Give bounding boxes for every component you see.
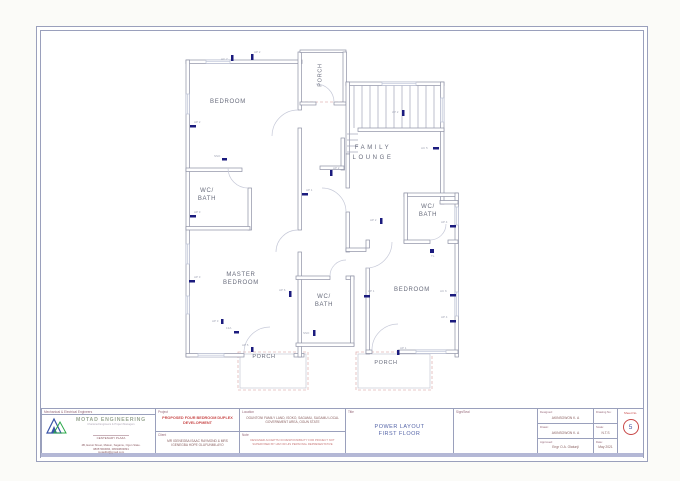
room-label-wc-bath-center: WC/BATH bbox=[315, 294, 333, 309]
socket-symbol bbox=[380, 218, 383, 224]
note-value: DESIGNER ACCEPTS NO RESPONSIBILITY FOR P… bbox=[240, 437, 345, 446]
room-label-bedroom-1: BEDROOM bbox=[210, 99, 246, 107]
company-plaza: CENTENARY PLAZA bbox=[93, 435, 130, 440]
socket-label: AP 2 bbox=[370, 218, 377, 222]
socket-label: AP 1 bbox=[368, 289, 375, 293]
socket-label: AP 1 bbox=[306, 188, 313, 192]
socket-symbol bbox=[364, 295, 370, 298]
location-value: OGUNTONI FAMILY LAND, ISOKO, SAGAMU, SAG… bbox=[240, 414, 345, 424]
designed-label: Designed: bbox=[538, 409, 593, 414]
people-cell: Designed: AKINSOWON K. A Drawn: AKINSOWO… bbox=[537, 409, 593, 453]
engineers-strip-label: Mechanical & Electrical Engineers bbox=[42, 409, 155, 414]
socket-symbol bbox=[190, 215, 196, 218]
socket-symbol bbox=[190, 125, 196, 128]
socket-label: AP 1 bbox=[400, 346, 407, 350]
socket-symbol bbox=[189, 280, 195, 283]
room-label-porch-bottom-left: PORCH bbox=[252, 354, 275, 362]
walls bbox=[186, 50, 459, 357]
scale-label: Scale: bbox=[594, 424, 617, 429]
socket-symbols: AC 7AP 2AP 2AP 3AP 3SSOAP 3AP 1AP 2AC 5A… bbox=[189, 50, 456, 355]
socket-label: AP 2 bbox=[194, 120, 201, 124]
socket-label: AP 3 bbox=[194, 275, 201, 279]
project-client-cell: Project PROPOSED FOUR BEDROOM DUPLEX DEV… bbox=[155, 409, 239, 453]
room-label-bedroom-2: BEDROOM bbox=[394, 287, 430, 295]
sheet-no-label: Sheet No. bbox=[618, 411, 643, 415]
socket-label: AP 6 bbox=[279, 288, 286, 292]
room-label-wc-bath-right: WC/BATH bbox=[419, 204, 437, 219]
date-label: Date: bbox=[594, 439, 617, 444]
socket-symbol bbox=[450, 225, 456, 228]
drawn-value: AKINSOWON K. A bbox=[538, 431, 593, 435]
socket-label: AP 5 bbox=[242, 343, 249, 347]
designed-value: AKINSOWON K. A bbox=[538, 416, 593, 420]
title-block: Mechanical & Electrical Engineers MOTAD … bbox=[41, 408, 643, 458]
drawing-no-label: Drawing No: bbox=[594, 409, 617, 414]
room-label-porch-bottom-right: PORCH bbox=[374, 360, 397, 368]
socket-label: SSO bbox=[214, 154, 221, 158]
socket-label: 13A bbox=[226, 326, 231, 330]
approved-label: Approved: bbox=[538, 439, 593, 444]
company-tagline: Chartered Engineers & Project Managers bbox=[69, 423, 153, 426]
socket-label: AP 3 bbox=[212, 319, 219, 323]
socket-label: SSO bbox=[303, 331, 310, 335]
socket-symbol bbox=[313, 330, 316, 336]
socket-label: AP 4 bbox=[441, 220, 448, 224]
socket-symbol bbox=[251, 347, 254, 352]
company-cell: Mechanical & Electrical Engineers MOTAD … bbox=[41, 409, 155, 453]
socket-label: TL bbox=[431, 254, 435, 258]
socket-label: AC 6 bbox=[440, 289, 447, 293]
sign-seal-header: Sign/Seal bbox=[454, 409, 537, 414]
room-label-master-bedroom: MASTERBEDROOM bbox=[223, 272, 259, 287]
motad-logo-icon bbox=[45, 417, 69, 435]
socket-symbol bbox=[433, 147, 439, 150]
room-label-family-lounge: FAMILYLOUNGE bbox=[353, 143, 394, 163]
socket-symbol bbox=[221, 319, 224, 324]
socket-label: AP 3 bbox=[194, 210, 201, 214]
socket-symbol bbox=[402, 110, 405, 116]
drawing-sheet: AC 7AP 2AP 2AP 3AP 3SSOAP 3AP 1AP 2AC 5A… bbox=[0, 0, 680, 481]
socket-symbol bbox=[450, 294, 456, 297]
socket-symbol bbox=[289, 291, 292, 297]
socket-label: AP 2 bbox=[333, 166, 340, 170]
approved-value: Engr O.A. Olatunji bbox=[538, 445, 593, 449]
location-note-cell: Location OGUNTONI FAMILY LAND, ISOKO, SA… bbox=[239, 409, 345, 453]
socket-symbol bbox=[397, 350, 400, 355]
socket-label: AC 5 bbox=[421, 146, 428, 150]
room-label-wc-bath-left: WC/BATH bbox=[198, 188, 216, 203]
socket-symbol bbox=[302, 193, 308, 196]
socket-label: AP 2 bbox=[254, 50, 261, 54]
socket-symbol bbox=[222, 158, 227, 161]
sheet-no-badge: 5 bbox=[623, 419, 639, 435]
drawing-title-cell: Title POWER LAYOUTFIRST FLOOR bbox=[345, 409, 453, 453]
drawing-title: POWER LAYOUTFIRST FLOOR bbox=[346, 424, 453, 438]
sheet-no-cell: Sheet No. 5 bbox=[617, 409, 643, 453]
door-arcs bbox=[228, 84, 446, 354]
scale-value: N.T.S bbox=[594, 431, 617, 435]
title-header: Title bbox=[346, 409, 453, 414]
meta-cell: Drawing No: Scale: N.T.S Date: May 2021 bbox=[593, 409, 617, 453]
socket-symbol bbox=[330, 170, 333, 176]
sign-seal-cell: Sign/Seal bbox=[453, 409, 537, 453]
room-label-porch-top: PORCH bbox=[317, 63, 325, 86]
date-value: May 2021 bbox=[594, 445, 617, 449]
socket-label: AP 2 bbox=[392, 110, 399, 114]
drawn-label: Drawn: bbox=[538, 424, 593, 429]
client-value: MR IGENEGBA ISAAC RAYMOND & MRS IGENEGBA… bbox=[156, 437, 239, 447]
socket-label: AP 4 bbox=[441, 315, 448, 319]
socket-symbol bbox=[251, 54, 254, 60]
company-email: motadltd@gmail.com bbox=[69, 451, 153, 455]
project-value: PROPOSED FOUR BEDROOM DUPLEX DEVELOPMENT bbox=[156, 414, 239, 425]
socket-symbol bbox=[231, 55, 234, 61]
socket-symbol bbox=[430, 249, 434, 253]
socket-label: AC 7 bbox=[221, 57, 228, 61]
socket-symbol bbox=[234, 331, 239, 334]
socket-symbol bbox=[450, 320, 456, 323]
